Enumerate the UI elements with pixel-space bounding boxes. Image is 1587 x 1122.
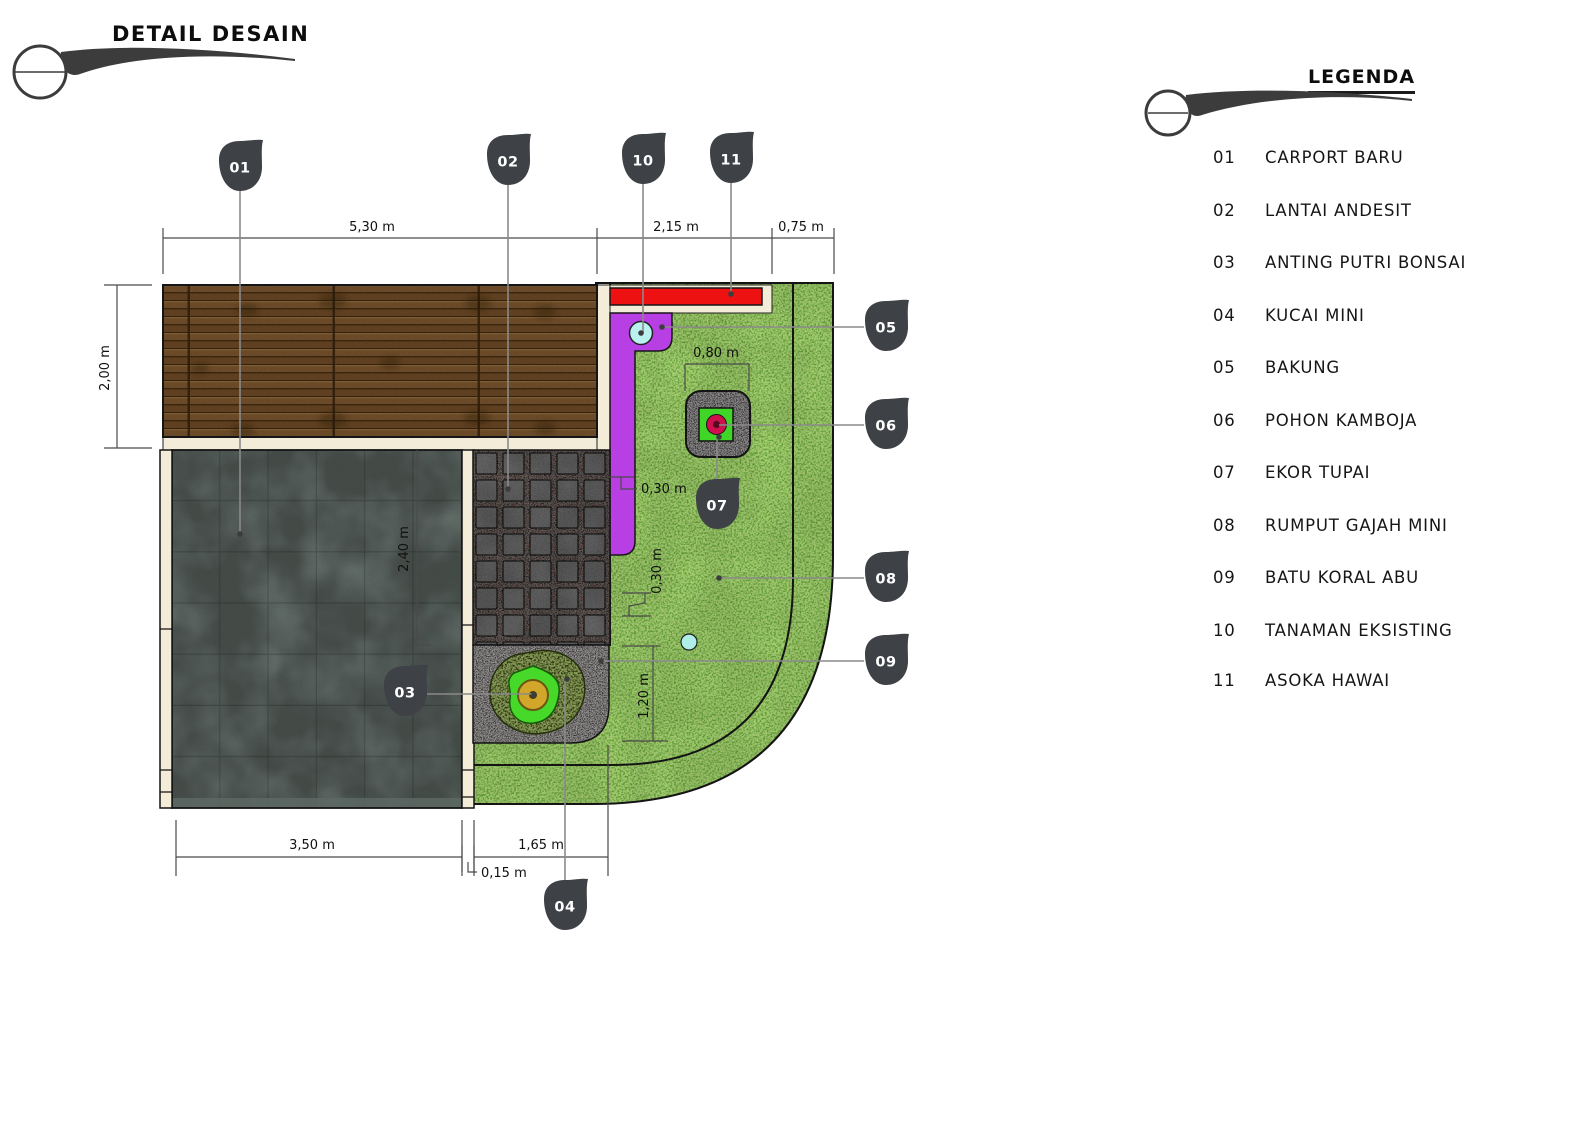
callout-04-kucai-mini: 04 <box>544 879 588 930</box>
callout-06-kamboja: 06 <box>865 398 909 449</box>
dim-andesit-width: 1,65 m <box>518 838 564 853</box>
legend-item-number: 02 <box>1213 201 1265 220</box>
legend-item-label: LANTAI ANDESIT <box>1265 201 1412 220</box>
legend-item-label: EKOR TUPAI <box>1265 463 1370 482</box>
legend-item: 02 LANTAI ANDESIT <box>1213 201 1583 220</box>
legend-item-label: ANTING PUTRI BONSAI <box>1265 253 1466 272</box>
legend-item-label: CARPORT BARU <box>1265 148 1404 167</box>
legend-item-number: 03 <box>1213 253 1265 272</box>
callout-number: 03 <box>394 686 415 702</box>
legend-item-label: TANAMAN EKSISTING <box>1265 621 1453 640</box>
legend-item: 05 BAKUNG <box>1213 358 1583 377</box>
legend-item-number: 08 <box>1213 516 1265 535</box>
callout-09-batu-koral: 09 <box>865 634 909 685</box>
dim-deck-depth: 2,00 m <box>98 345 113 391</box>
legend-item: 09 BATU KORAL ABU <box>1213 568 1583 587</box>
legend-item-number: 01 <box>1213 148 1265 167</box>
legend-item-number: 05 <box>1213 358 1265 377</box>
callout-05-bakung: 05 <box>865 300 909 351</box>
legend-item: 11 ASOKA HAWAI <box>1213 671 1583 690</box>
callout-01-carport: 01 <box>219 140 263 191</box>
legend-item-number: 11 <box>1213 671 1265 690</box>
dim-edge-strip-width: 0,30 m <box>650 548 665 594</box>
kamboja-planter <box>686 391 750 457</box>
dim-carport-width: 3,50 m <box>289 838 335 853</box>
dim-bakung-strip-width: 0,30 m <box>641 482 687 497</box>
callout-number: 07 <box>706 499 727 515</box>
legend-item: 01 CARPORT BARU <box>1213 148 1583 167</box>
legend-item-label: POHON KAMBOJA <box>1265 411 1417 430</box>
legend-item-number: 06 <box>1213 411 1265 430</box>
legend-item-label: BAKUNG <box>1265 358 1340 377</box>
legend-item-label: ASOKA HAWAI <box>1265 671 1390 690</box>
drawing-sheet: DETAIL DESAIN LEGENDA 01 CARPORT BARU 02… <box>0 0 1587 1122</box>
dim-koral-bed-depth: 1,20 m <box>637 673 652 719</box>
legend-item-label: KUCAI MINI <box>1265 306 1365 325</box>
callout-number: 01 <box>229 161 250 177</box>
dim-deck-width: 5,30 m <box>349 220 395 235</box>
callout-10-tanaman-eksisting: 10 <box>622 133 666 184</box>
tanaman-eksisting-marker-2 <box>681 634 697 650</box>
asoka-hawai-strip <box>610 288 762 305</box>
callout-number: 05 <box>875 321 896 337</box>
legend-item-number: 09 <box>1213 568 1265 587</box>
legend-item: 03 ANTING PUTRI BONSAI <box>1213 253 1583 272</box>
callout-number: 06 <box>875 419 896 435</box>
callout-02-andesit: 02 <box>487 134 531 185</box>
callout-number: 11 <box>720 153 741 169</box>
dim-asoka-width: 2,15 m <box>653 220 699 235</box>
callout-08-rumput: 08 <box>865 551 909 602</box>
legend-item: 10 TANAMAN EKSISTING <box>1213 621 1583 640</box>
callout-11-asoka: 11 <box>710 132 754 183</box>
site-plan: 5,30 m 2,15 m 0,75 m 2,00 m 2,40 m 0,30 … <box>0 0 1000 1000</box>
callout-number: 10 <box>632 154 653 170</box>
legend: 01 CARPORT BARU 02 LANTAI ANDESIT 03 ANT… <box>1213 148 1583 723</box>
callout-number: 09 <box>875 655 896 671</box>
dim-curb-width: 0,15 m <box>481 866 527 881</box>
dim-kamboja-bed-width: 0,80 m <box>693 346 739 361</box>
legend-item-label: RUMPUT GAJAH MINI <box>1265 516 1448 535</box>
dim-side-width: 0,75 m <box>778 220 824 235</box>
callout-number: 02 <box>497 155 518 171</box>
legend-item-number: 04 <box>1213 306 1265 325</box>
carport-area <box>172 450 462 808</box>
legend-item: 07 EKOR TUPAI <box>1213 463 1583 482</box>
legend-item-number: 10 <box>1213 621 1265 640</box>
legend-item: 06 POHON KAMBOJA <box>1213 411 1583 430</box>
legend-item-number: 07 <box>1213 463 1265 482</box>
legend-item: 08 RUMPUT GAJAH MINI <box>1213 516 1583 535</box>
callout-number: 08 <box>875 572 896 588</box>
callout-number: 04 <box>554 900 575 916</box>
legend-item: 04 KUCAI MINI <box>1213 306 1583 325</box>
dim-carport-depth: 2,40 m <box>397 526 412 572</box>
wood-deck <box>163 285 597 437</box>
legend-item-label: BATU KORAL ABU <box>1265 568 1419 587</box>
legend-leader-icon <box>1140 85 1440 155</box>
andesite-floor <box>473 450 610 645</box>
